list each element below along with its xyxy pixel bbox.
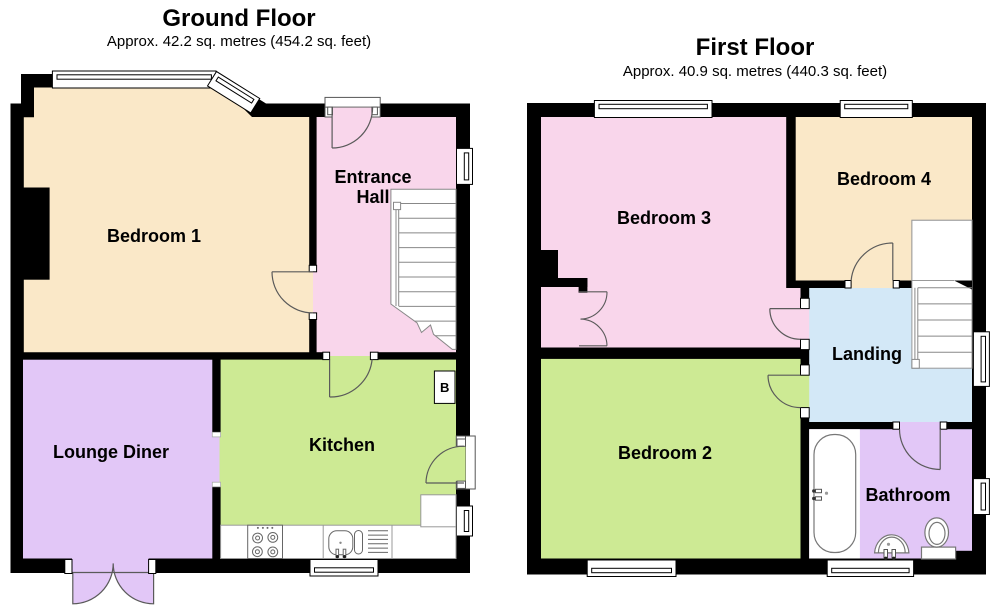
svg-text:Bedroom 4: Bedroom 4 <box>837 169 931 189</box>
svg-text:Bedroom 3: Bedroom 3 <box>617 208 711 228</box>
svg-text:Entrance: Entrance <box>334 167 411 187</box>
svg-text:Hall: Hall <box>356 187 389 207</box>
svg-text:Lounge Diner: Lounge Diner <box>53 442 169 462</box>
svg-text:Bedroom 2: Bedroom 2 <box>618 443 712 463</box>
svg-text:Landing: Landing <box>832 344 902 364</box>
svg-text:Approx. 42.2 sq. metres (454.2: Approx. 42.2 sq. metres (454.2 sq. feet) <box>107 33 371 50</box>
svg-text:First Floor: First Floor <box>696 34 815 61</box>
svg-text:Bedroom 1: Bedroom 1 <box>107 226 201 246</box>
svg-text:Kitchen: Kitchen <box>309 435 375 455</box>
svg-text:B: B <box>440 380 449 395</box>
svg-text:Approx. 40.9 sq. metres (440.3: Approx. 40.9 sq. metres (440.3 sq. feet) <box>623 63 887 80</box>
svg-text:Bathroom: Bathroom <box>866 485 951 505</box>
svg-text:Ground Floor: Ground Floor <box>162 5 315 32</box>
